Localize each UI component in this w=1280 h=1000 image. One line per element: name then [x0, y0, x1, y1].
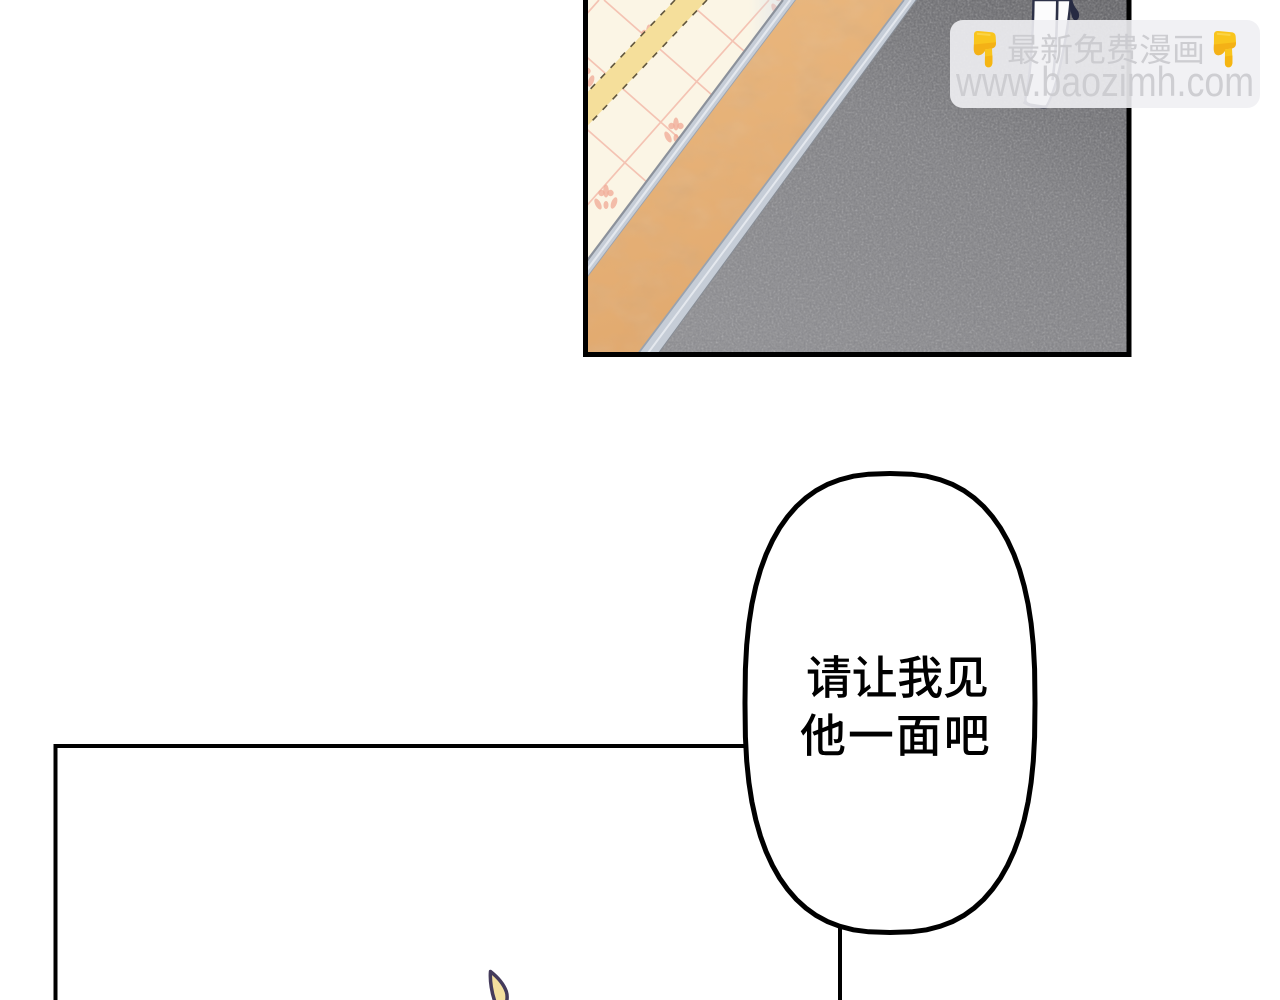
svg-text:www.baozimh.com: www.baozimh.com	[955, 58, 1254, 105]
